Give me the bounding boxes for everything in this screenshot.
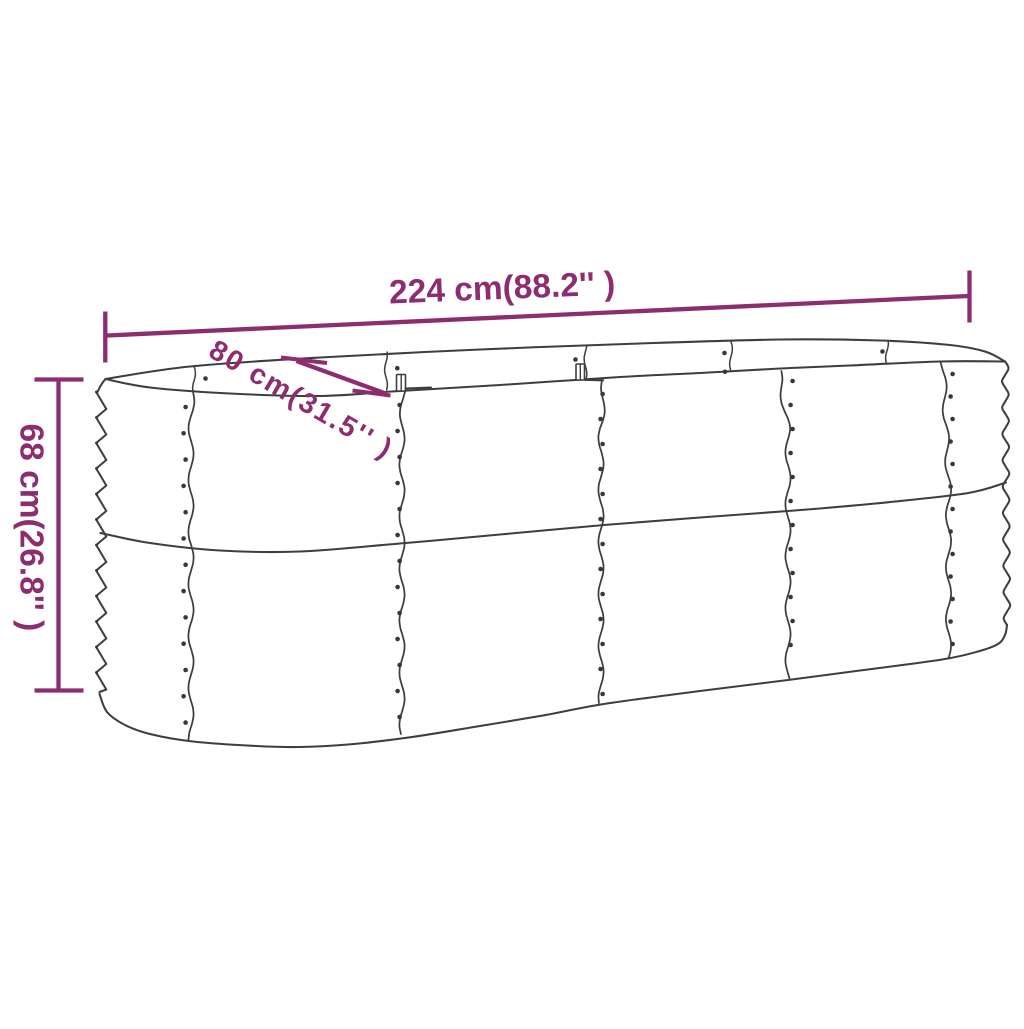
- svg-text:68 cm(26.8'' ): 68 cm(26.8'' ): [13, 424, 50, 632]
